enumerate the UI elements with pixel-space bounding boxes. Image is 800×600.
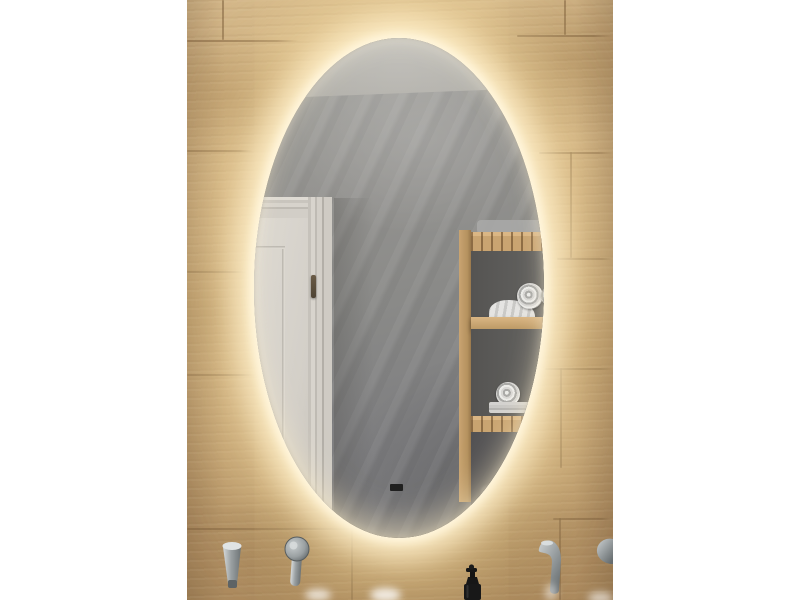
- bathroom-photo: [187, 0, 613, 600]
- basin-highlight: [588, 592, 613, 600]
- basin-highlight: [305, 589, 331, 600]
- basin-highlights: [187, 0, 613, 600]
- basin-highlight: [370, 588, 401, 600]
- basin-highlight: [545, 584, 557, 600]
- product-photo-canvas: [0, 0, 800, 600]
